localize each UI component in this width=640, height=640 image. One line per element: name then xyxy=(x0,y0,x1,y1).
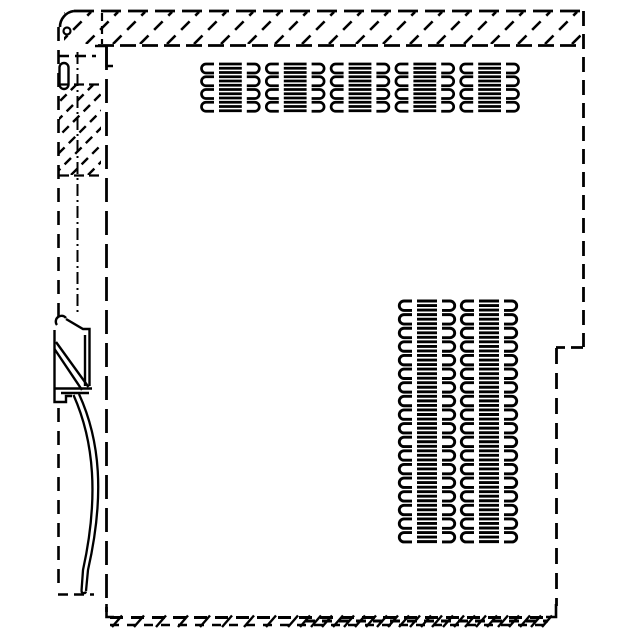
vent-slot-left-cap xyxy=(399,437,412,446)
vent-slot-left-cap xyxy=(461,328,474,337)
vent-slot-right-cap xyxy=(504,301,517,310)
vent-slot-right-cap xyxy=(506,90,519,99)
body-top-junction xyxy=(95,46,113,66)
vent-slot-left-cap xyxy=(399,464,412,473)
vent-slot-right-cap xyxy=(504,492,517,501)
vent-slot-left-cap xyxy=(399,533,412,542)
vent-slot-left-cap xyxy=(399,396,412,405)
vent-slot-right-cap xyxy=(442,533,455,542)
vent-slot-left-cap xyxy=(461,396,474,405)
vent-slot-right-cap xyxy=(312,102,325,111)
flange-corner-arc xyxy=(60,11,74,27)
vent-slot-right-cap xyxy=(442,519,455,528)
vent-slot-right-cap xyxy=(504,369,517,378)
vent-slot-left-cap xyxy=(266,64,279,73)
vent-slot-right-cap xyxy=(442,424,455,433)
vent-grid-bottom xyxy=(399,301,516,542)
vent-slot-right-cap xyxy=(312,90,325,99)
vent-slot-left-cap xyxy=(399,355,412,364)
vent-slot-left-cap xyxy=(399,315,412,324)
vent-slot-left-cap xyxy=(461,410,474,419)
vent-slot-right-cap xyxy=(504,505,517,514)
vent-slot-left-cap xyxy=(461,505,474,514)
vent-slot-right-cap xyxy=(506,77,519,86)
vent-slot-right-cap xyxy=(441,102,454,111)
vent-slot-right-cap xyxy=(442,342,455,351)
vent-slot-left-cap xyxy=(399,383,412,392)
vent-slot-right-cap xyxy=(442,492,455,501)
vent-slot-right-cap xyxy=(247,90,259,99)
vent-slot-right-cap xyxy=(376,102,389,111)
vent-slot-right-cap xyxy=(312,77,325,86)
vent-slot-left-cap xyxy=(461,369,474,378)
vent-slot-left-cap xyxy=(399,451,412,460)
vent-slot-left-cap xyxy=(399,492,412,501)
vent-slot-left-cap xyxy=(396,64,409,73)
vent-slot-left-cap xyxy=(396,77,409,86)
vent-slot-right-cap xyxy=(504,533,517,542)
vent-slot-left-cap xyxy=(399,410,412,419)
vent-slot-left-cap xyxy=(399,519,412,528)
vent-slot-right-cap xyxy=(506,64,519,73)
vent-slot-right-cap xyxy=(504,383,517,392)
vent-slot-left-cap xyxy=(399,342,412,351)
clip-spring-diagonal-2 xyxy=(55,349,83,390)
vent-slot-left-cap xyxy=(331,90,344,99)
vent-slot-left-cap xyxy=(399,478,412,487)
vent-slot-right-cap xyxy=(504,315,517,324)
vent-slot-right-cap xyxy=(441,77,454,86)
vent-slot-left-cap xyxy=(461,519,474,528)
vent-slot-left-cap xyxy=(461,355,474,364)
vent-slot-left-cap xyxy=(461,64,473,73)
vent-slot-left-cap xyxy=(461,77,473,86)
vent-slot-left-cap xyxy=(399,369,412,378)
vent-slot-right-cap xyxy=(312,64,325,73)
strap-outer-curve xyxy=(79,394,98,591)
clip-group xyxy=(54,316,92,402)
vent-slot-right-cap xyxy=(504,328,517,337)
strap-tip xyxy=(82,591,87,593)
vent-slot-right-cap xyxy=(504,451,517,460)
vent-slot-left-cap xyxy=(266,77,279,86)
vent-slot-left-cap xyxy=(202,64,215,73)
vent-slot-left-cap xyxy=(202,77,215,86)
vent-slot-right-cap xyxy=(441,64,454,73)
vent-slot-right-cap xyxy=(504,342,517,351)
vent-slot-left-cap xyxy=(399,505,412,514)
vent-slot-right-cap xyxy=(247,64,259,73)
vent-slot-left-cap xyxy=(396,102,409,111)
vent-slot-right-cap xyxy=(442,396,455,405)
strap-group xyxy=(74,394,99,593)
vent-grid-top xyxy=(202,64,519,111)
vent-slot-left-cap xyxy=(461,301,474,310)
drawing-canvas xyxy=(0,0,640,640)
clip-spring-diagonal-1 xyxy=(56,342,89,387)
vent-slot-left-cap xyxy=(461,533,474,542)
vent-group xyxy=(202,64,519,542)
vent-slot-right-cap xyxy=(504,410,517,419)
vent-slot-right-cap xyxy=(442,355,455,364)
vent-slot-left-cap xyxy=(399,301,412,310)
vent-slot-left-cap xyxy=(461,315,474,324)
body-bottom-corner xyxy=(107,604,115,617)
vent-slot-right-cap xyxy=(504,478,517,487)
vent-slot-left-cap xyxy=(461,90,473,99)
vent-slot-right-cap xyxy=(504,396,517,405)
vent-slot-right-cap xyxy=(442,410,455,419)
vent-slot-left-cap xyxy=(202,90,215,99)
flange-corner-hole xyxy=(64,28,71,35)
vent-slot-right-cap xyxy=(442,315,455,324)
technical-drawing xyxy=(0,0,640,640)
vent-slot-left-cap xyxy=(266,90,279,99)
vent-slot-right-cap xyxy=(504,437,517,446)
vent-slot-left-cap xyxy=(461,424,474,433)
vent-slot-right-cap xyxy=(506,102,519,111)
vent-slot-left-cap xyxy=(461,102,473,111)
vent-slot-right-cap xyxy=(441,90,454,99)
vent-slot-right-cap xyxy=(247,77,259,86)
vent-slot-left-cap xyxy=(331,64,344,73)
vent-slot-left-cap xyxy=(399,424,412,433)
vent-slot-left-cap xyxy=(331,77,344,86)
vent-slot-left-cap xyxy=(461,383,474,392)
vent-slot-right-cap xyxy=(442,383,455,392)
vent-slot-right-cap xyxy=(442,328,455,337)
vent-slot-right-cap xyxy=(442,437,455,446)
vent-slot-left-cap xyxy=(202,102,215,111)
clip-hook-loop xyxy=(56,316,66,325)
vent-slot-right-cap xyxy=(247,102,259,111)
vent-slot-right-cap xyxy=(442,301,455,310)
vent-slot-right-cap xyxy=(442,478,455,487)
vent-slot-left-cap xyxy=(461,478,474,487)
vent-slot-right-cap xyxy=(376,64,389,73)
vent-slot-right-cap xyxy=(504,355,517,364)
vent-slot-right-cap xyxy=(376,90,389,99)
vent-slot-right-cap xyxy=(442,369,455,378)
vent-slot-left-cap xyxy=(399,328,412,337)
vent-slot-left-cap xyxy=(461,464,474,473)
vent-slot-left-cap xyxy=(396,90,409,99)
vent-slot-left-cap xyxy=(461,492,474,501)
vent-slot-right-cap xyxy=(504,464,517,473)
vent-slot-right-cap xyxy=(442,451,455,460)
vent-slot-right-cap xyxy=(504,424,517,433)
vent-slot-right-cap xyxy=(504,519,517,528)
vent-slot-right-cap xyxy=(376,77,389,86)
vent-slot-left-cap xyxy=(461,342,474,351)
vent-slot-left-cap xyxy=(266,102,279,111)
vent-slot-left-cap xyxy=(461,437,474,446)
vent-slot-left-cap xyxy=(331,102,344,111)
vent-slot-left-cap xyxy=(461,451,474,460)
vent-slot-right-cap xyxy=(442,464,455,473)
strip-hatch xyxy=(0,85,195,175)
flange-hatch xyxy=(32,12,631,44)
vent-slot-right-cap xyxy=(442,505,455,514)
